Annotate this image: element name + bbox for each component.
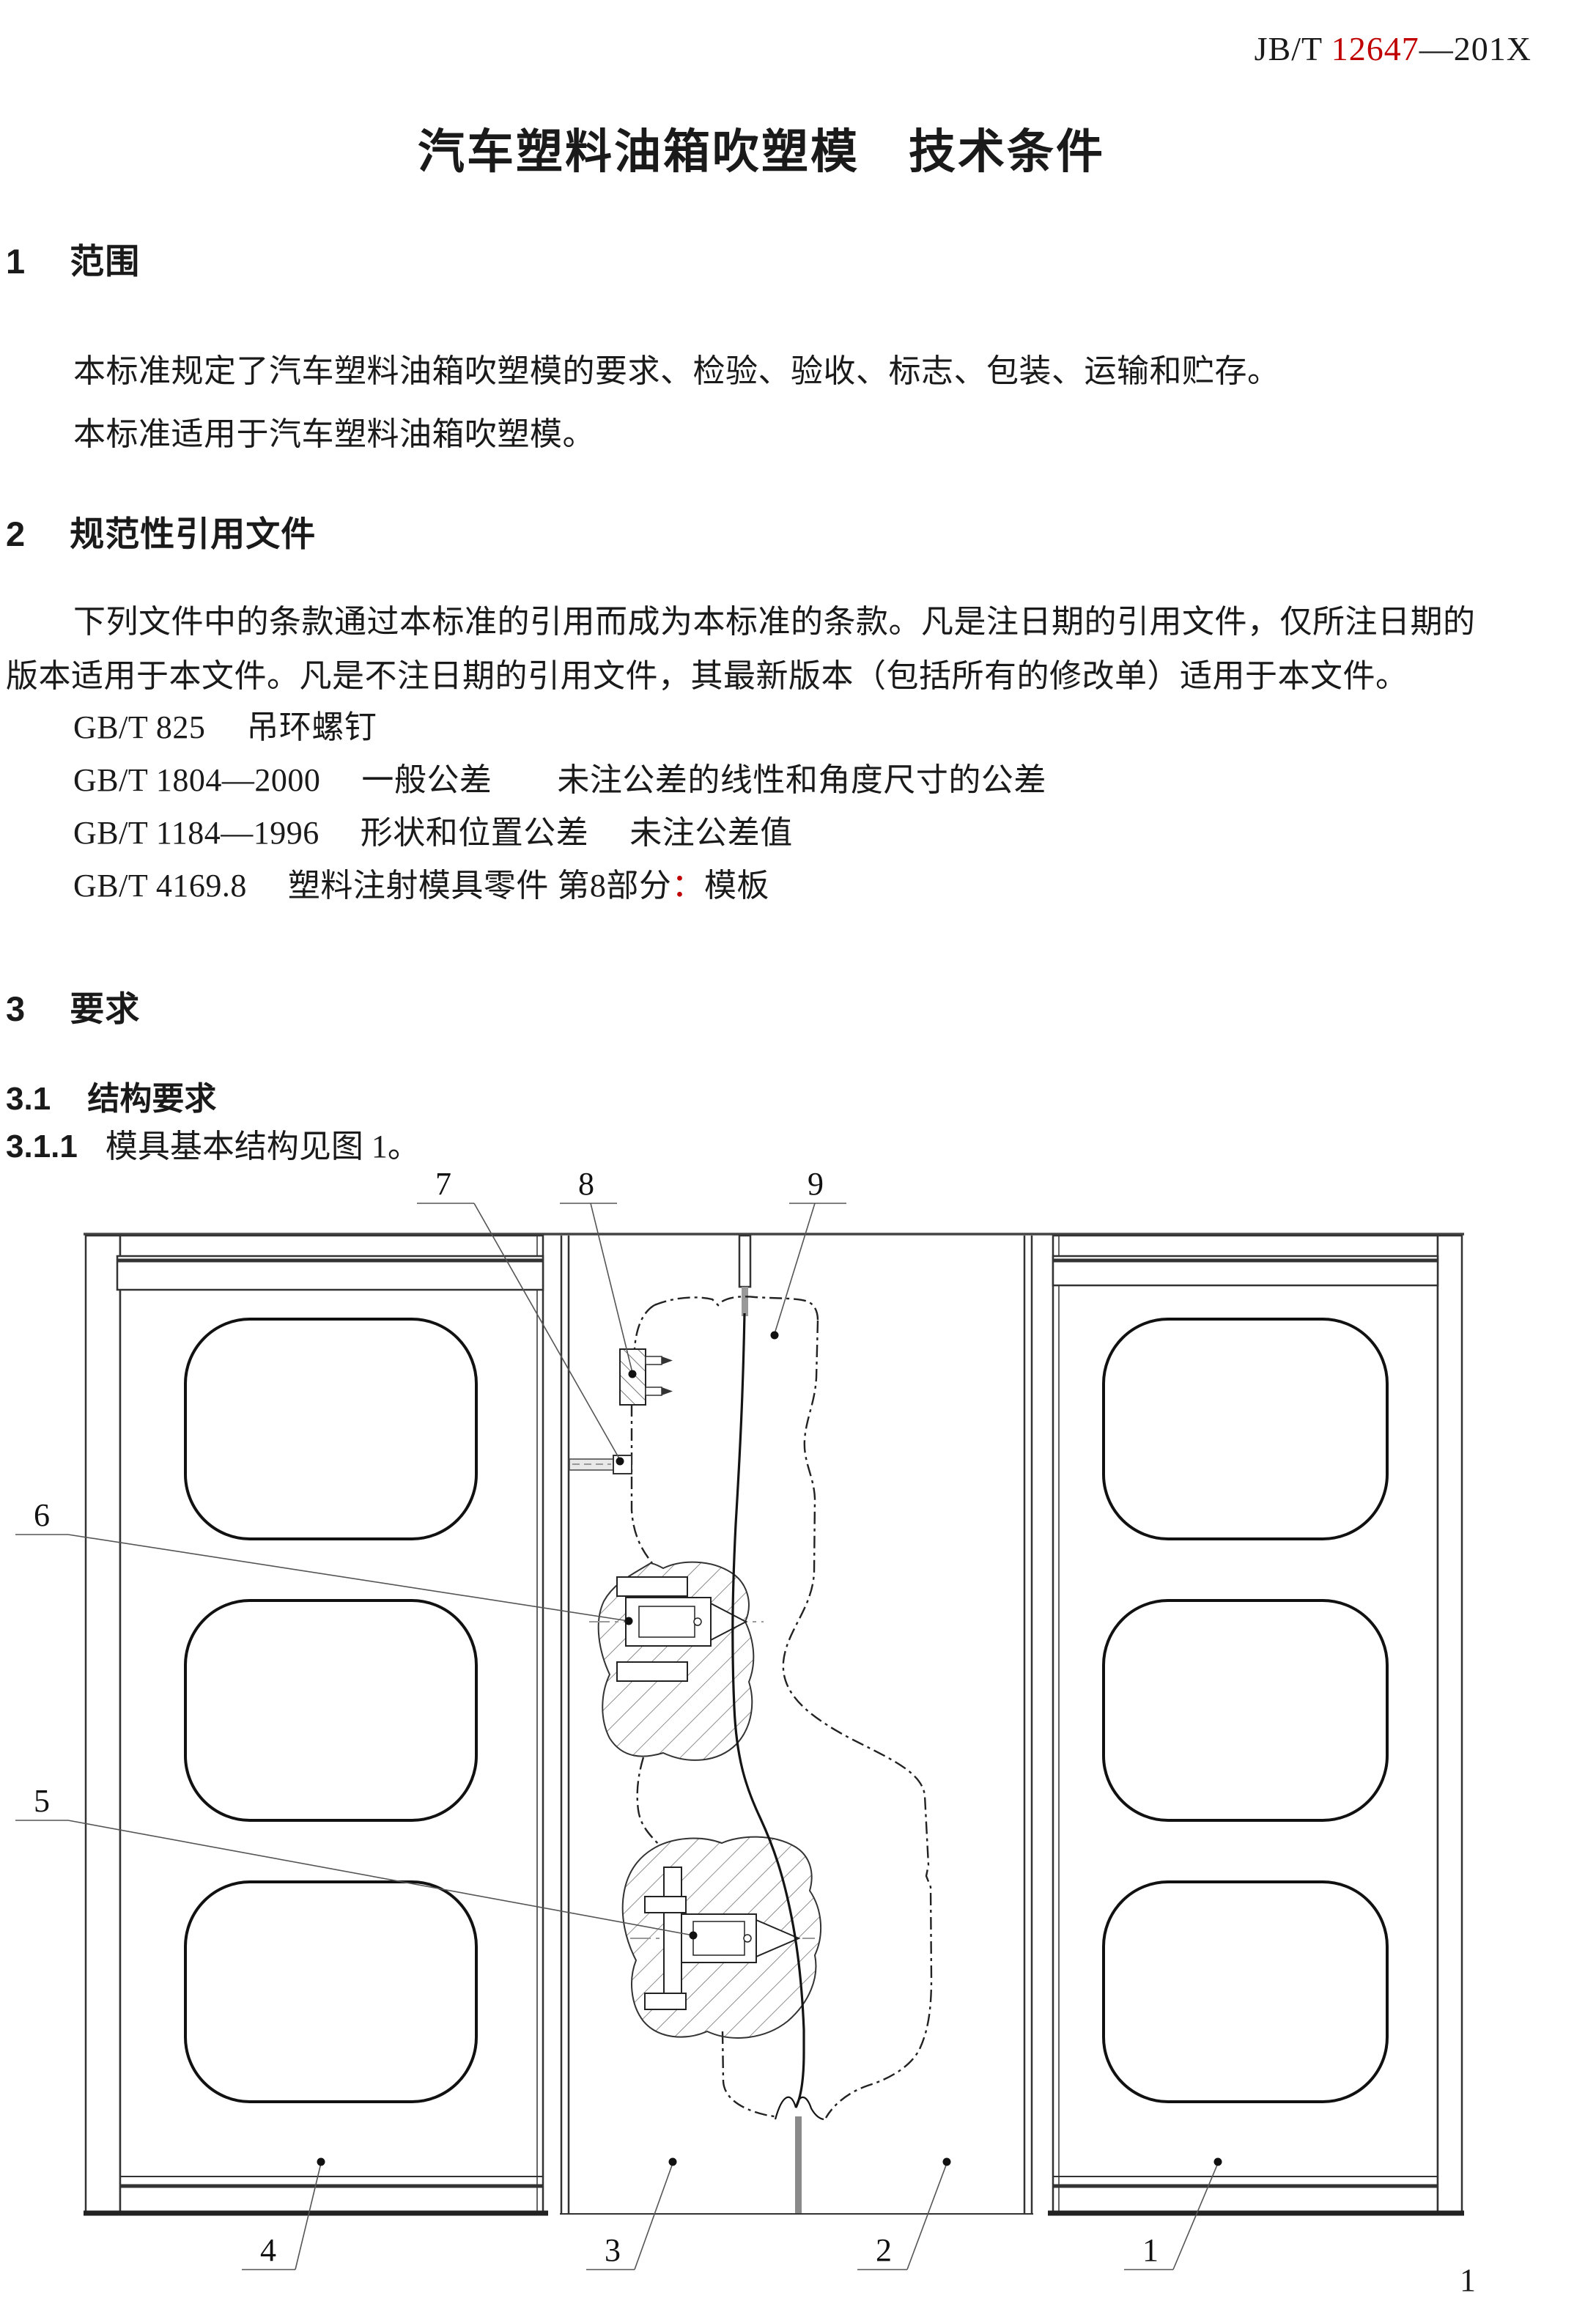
center-section: [560, 1236, 1033, 2214]
section-1-title: 范围: [70, 233, 140, 284]
guide-rod-end-block: [613, 1455, 632, 1474]
scope-paragraph-1: 本标准规定了汽车塑料油箱吹塑模的要求、检验、验收、标志、包装、运输和贮存。: [73, 344, 1280, 391]
extrusion-rod-stem: [742, 1287, 748, 1316]
right-pocket-top: [1104, 1319, 1387, 1539]
left-pocket-bottom: [185, 1882, 476, 2102]
clamp-bolt-top: [646, 1356, 662, 1365]
section-3-1-title: 结构要求: [87, 1081, 216, 1117]
section-3-title: 要求: [70, 981, 140, 1031]
left-mold-half: [84, 1236, 548, 2213]
upper-pin-bottom-flange: [617, 1662, 687, 1681]
section-3-1-number: 3.1: [6, 1081, 51, 1117]
upper-pin-top-flange: [617, 1577, 687, 1596]
callout-label-4: 4: [260, 2232, 276, 2268]
section-2-title: 规范性引用文件: [70, 506, 316, 556]
page-title: 汽车塑料油箱吹塑模 技术条件: [0, 114, 1596, 182]
references-paragraph-line-2: 版本适用于本文件。凡是不注日期的引用文件，其最新版本（包括所有的修改单）适用于本…: [6, 649, 1408, 696]
callout-label-5: 5: [34, 1783, 50, 1819]
callout-label-2: 2: [876, 2232, 892, 2268]
section-3-heading: 3 要求: [6, 981, 140, 1031]
document-page: { "colors": { "accent_red": "#c00000", "…: [0, 0, 1596, 2315]
standard-code-header: JB/T 12647—201X: [1255, 29, 1532, 68]
lower-pin-flange-plate: [664, 1867, 681, 2009]
upper-pin-port: [694, 1618, 701, 1625]
callout-label-9: 9: [808, 1166, 824, 1202]
callout-label-6: 6: [34, 1497, 50, 1533]
left-cavity-pockets: [185, 1319, 476, 2102]
reference-item-3: GB/T 1184—1996 形状和位置公差 未注公差值: [73, 806, 793, 853]
standard-code-suffix: —201X: [1419, 30, 1532, 67]
section-2-number: 2: [6, 514, 26, 554]
section-3-1-heading: 3.1 结构要求: [6, 1072, 216, 1119]
standard-code-prefix: JB/T: [1255, 30, 1331, 67]
scope-paragraph-2: 本标准适用于汽车塑料油箱吹塑模。: [73, 407, 595, 454]
reference-item-1: GB/T 825 吊环螺钉: [73, 701, 377, 747]
page-number: 1: [1460, 2262, 1476, 2299]
right-pocket-middle: [1104, 1600, 1387, 1820]
right-pocket-bottom: [1104, 1882, 1387, 2102]
reference-item-4-text: GB/T 4169.8 塑料注射模具零件 第8部分: [73, 868, 671, 904]
callout-label-7: 7: [435, 1166, 451, 1202]
right-cavity-pockets: [1104, 1319, 1387, 2102]
section-2-heading: 2 规范性引用文件: [6, 506, 316, 556]
callout-label-1: 1: [1142, 2232, 1159, 2268]
section-1-heading: 1 范围: [6, 233, 140, 284]
callout-label-3: 3: [605, 2232, 621, 2268]
clamp-bolt-bottom-tip: [662, 1387, 673, 1395]
left-pocket-middle: [185, 1600, 476, 1820]
lower-pin-step-top: [645, 1897, 686, 1913]
lower-pin-body-inner: [693, 1921, 745, 1955]
lower-pin-step-bottom: [645, 1993, 686, 2009]
clamp-bolt-bottom: [646, 1387, 662, 1395]
right-mold-half: [1048, 1236, 1464, 2213]
callout-label-8: 8: [578, 1166, 594, 1202]
standard-code-number: 12647: [1331, 30, 1419, 67]
section-3-number: 3: [6, 989, 26, 1029]
reference-item-4: GB/T 4169.8 塑料注射模具零件 第8部分：模板: [73, 859, 769, 906]
upper-pin-body-inner: [639, 1606, 695, 1637]
reference-item-4-tail: 模板: [704, 868, 769, 904]
reference-item-4-colon: ：: [671, 868, 704, 904]
lower-pin-port: [744, 1935, 751, 1942]
extrusion-rod: [739, 1236, 750, 1287]
figure-1-drawing: 7 8 9 6 5 4 3 2 1: [0, 1143, 1596, 2315]
left-pocket-top: [185, 1319, 476, 1539]
reference-item-2: GB/T 1804—2000 一般公差 未注公差的线性和角度尺寸的公差: [73, 753, 1046, 800]
section-1-number: 1: [6, 241, 26, 281]
pinch-off-tail: [795, 2116, 802, 2213]
clamp-block-assembly: [620, 1349, 673, 1405]
clamp-bolt-top-tip: [662, 1356, 673, 1365]
references-paragraph-line-1: 下列文件中的条款通过本标准的引用而成为本标准的条款。凡是注日期的引用文件，仅所注…: [73, 595, 1476, 642]
left-back-plate: [86, 1236, 120, 2213]
right-back-plate: [1438, 1236, 1462, 2213]
